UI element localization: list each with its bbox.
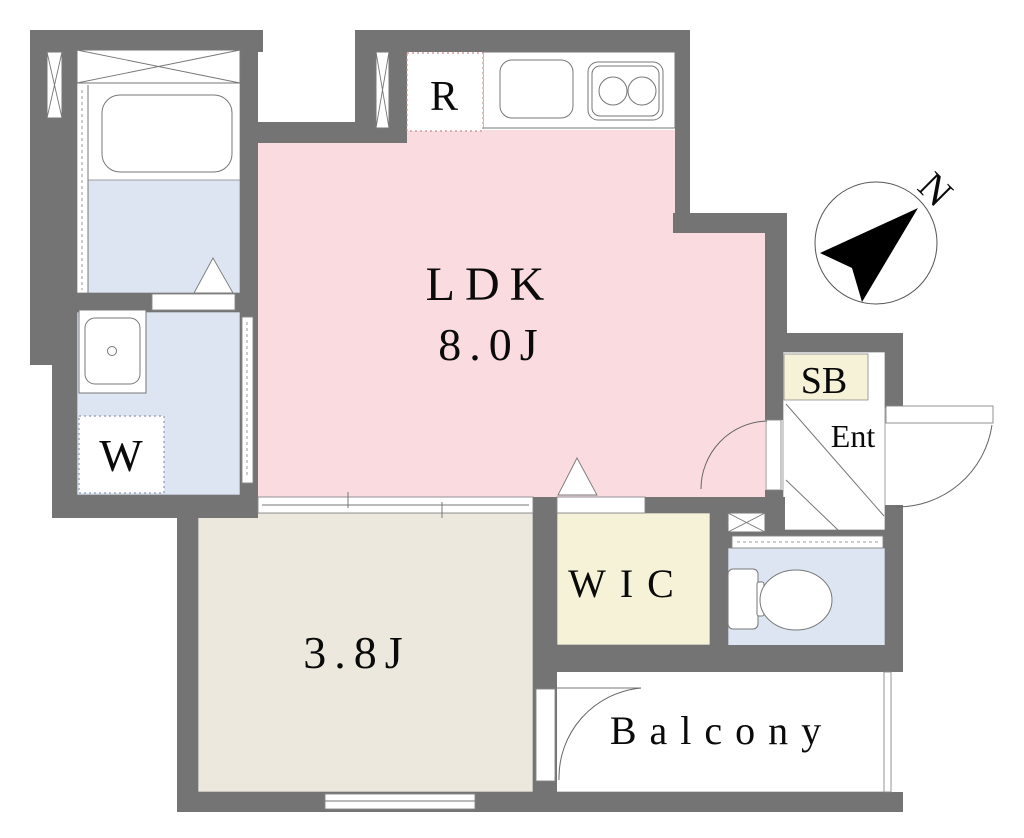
balcony-railing bbox=[884, 672, 891, 792]
ldk-size-label: 8.0J bbox=[438, 319, 545, 370]
wall-segment bbox=[710, 548, 728, 647]
wall-segment bbox=[765, 490, 783, 530]
wall-segment bbox=[673, 213, 787, 233]
toilet-room bbox=[728, 569, 832, 630]
toilet-sliding-door bbox=[732, 536, 883, 548]
floors bbox=[77, 83, 885, 792]
wall-segment bbox=[885, 352, 903, 408]
bath-door bbox=[152, 294, 235, 310]
entrance-label: Ent bbox=[831, 418, 876, 454]
washer-label: W bbox=[99, 430, 143, 481]
floor-plan-svg: N LDK 8.0J 3.8J WIC Balcony W R SB Ent bbox=[0, 0, 1024, 838]
front-door-leaf bbox=[886, 406, 993, 423]
wall-segment bbox=[389, 52, 407, 143]
wall-segment bbox=[52, 300, 77, 518]
washbasin-cabinet bbox=[79, 310, 146, 393]
shoe-box-label: SB bbox=[801, 360, 847, 402]
wall-segment bbox=[355, 30, 690, 52]
floor-plan-page: N LDK 8.0J 3.8J WIC Balcony W R SB Ent bbox=[0, 0, 1024, 838]
wall-segment bbox=[765, 352, 783, 420]
ldk-label: LDK bbox=[426, 258, 555, 311]
wic-door bbox=[557, 497, 645, 513]
toilet-tank bbox=[728, 569, 758, 629]
balcony-door-opening bbox=[536, 689, 555, 781]
balcony-label: Balcony bbox=[610, 708, 834, 753]
front-door-arc bbox=[896, 425, 992, 507]
wall-segment bbox=[765, 233, 787, 352]
ldk-hall-door-leaf bbox=[766, 420, 781, 490]
wic-label: WIC bbox=[568, 561, 688, 606]
wall-segment bbox=[240, 52, 258, 312]
wall-segment bbox=[376, 128, 389, 143]
kitchen-counter bbox=[483, 52, 675, 128]
wall-segment bbox=[675, 30, 690, 213]
wall-segment bbox=[885, 505, 903, 672]
bathtub bbox=[102, 95, 232, 172]
compass: N bbox=[815, 163, 962, 304]
wall-segment bbox=[177, 513, 198, 812]
refrigerator-label: R bbox=[430, 74, 458, 120]
bedroom-size-label: 3.8J bbox=[303, 627, 410, 678]
wall-segment bbox=[533, 645, 903, 672]
toilet-bowl bbox=[760, 570, 832, 630]
wall-segment bbox=[52, 495, 258, 518]
